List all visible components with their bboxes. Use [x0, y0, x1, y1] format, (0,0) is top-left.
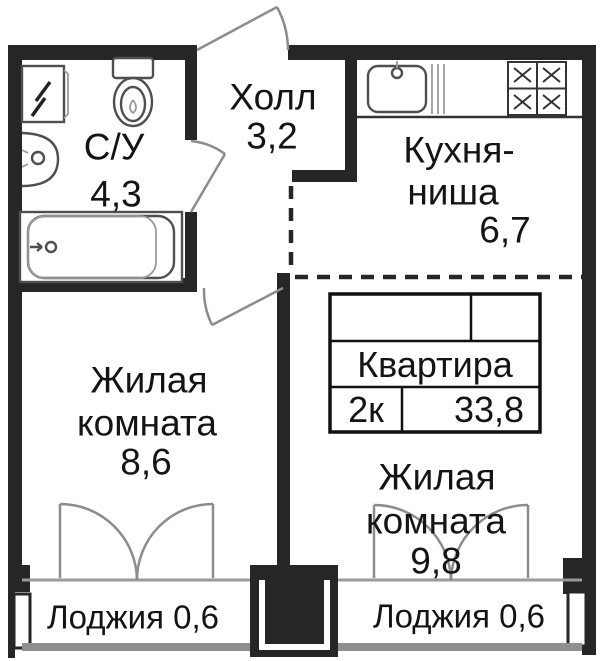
entrance-door: [197, 7, 288, 50]
living-left-area: 8,6: [120, 444, 171, 481]
stove-icon: [508, 62, 566, 115]
loggia-right-label: Лоджия 0,6: [373, 600, 545, 633]
hall-area: 3,2: [246, 118, 297, 155]
info-table-area: 33,8: [454, 392, 524, 428]
living-left-door: [204, 288, 283, 325]
bathroom-name: С/У: [84, 129, 145, 166]
living-left-name-line2: комната: [77, 405, 217, 442]
french-doors-left: [60, 504, 213, 580]
kitchen-name-line2: ниша: [407, 174, 498, 211]
bathroom-door: [191, 141, 225, 212]
floor-plan: С/У 4,3 Холл 3,2 Кухня- ниша 6,7 Жилая к…: [0, 0, 600, 661]
info-table-type: 2к: [348, 392, 384, 428]
info-table-title: Квартира: [357, 347, 513, 383]
kitchen-name-line1: Кухня-: [403, 132, 514, 169]
living-left-name-line1: Жилая: [90, 362, 207, 399]
hall-name: Холл: [229, 79, 316, 116]
bathroom-area: 4,3: [90, 176, 141, 213]
bathtub-icon: [20, 212, 182, 282]
kitchen-area: 6,7: [479, 212, 530, 249]
living-right-name-line1: Жилая: [378, 459, 495, 496]
kitchen-sink-icon: [368, 61, 426, 112]
living-right-area: 9,8: [410, 543, 461, 580]
living-right-name-line2: комната: [366, 503, 506, 540]
toilet-icon: [113, 58, 153, 126]
loggia-left-label: Лоджия 0,6: [47, 601, 219, 634]
sink-icon: [22, 133, 58, 186]
washing-machine-icon: [22, 66, 68, 122]
